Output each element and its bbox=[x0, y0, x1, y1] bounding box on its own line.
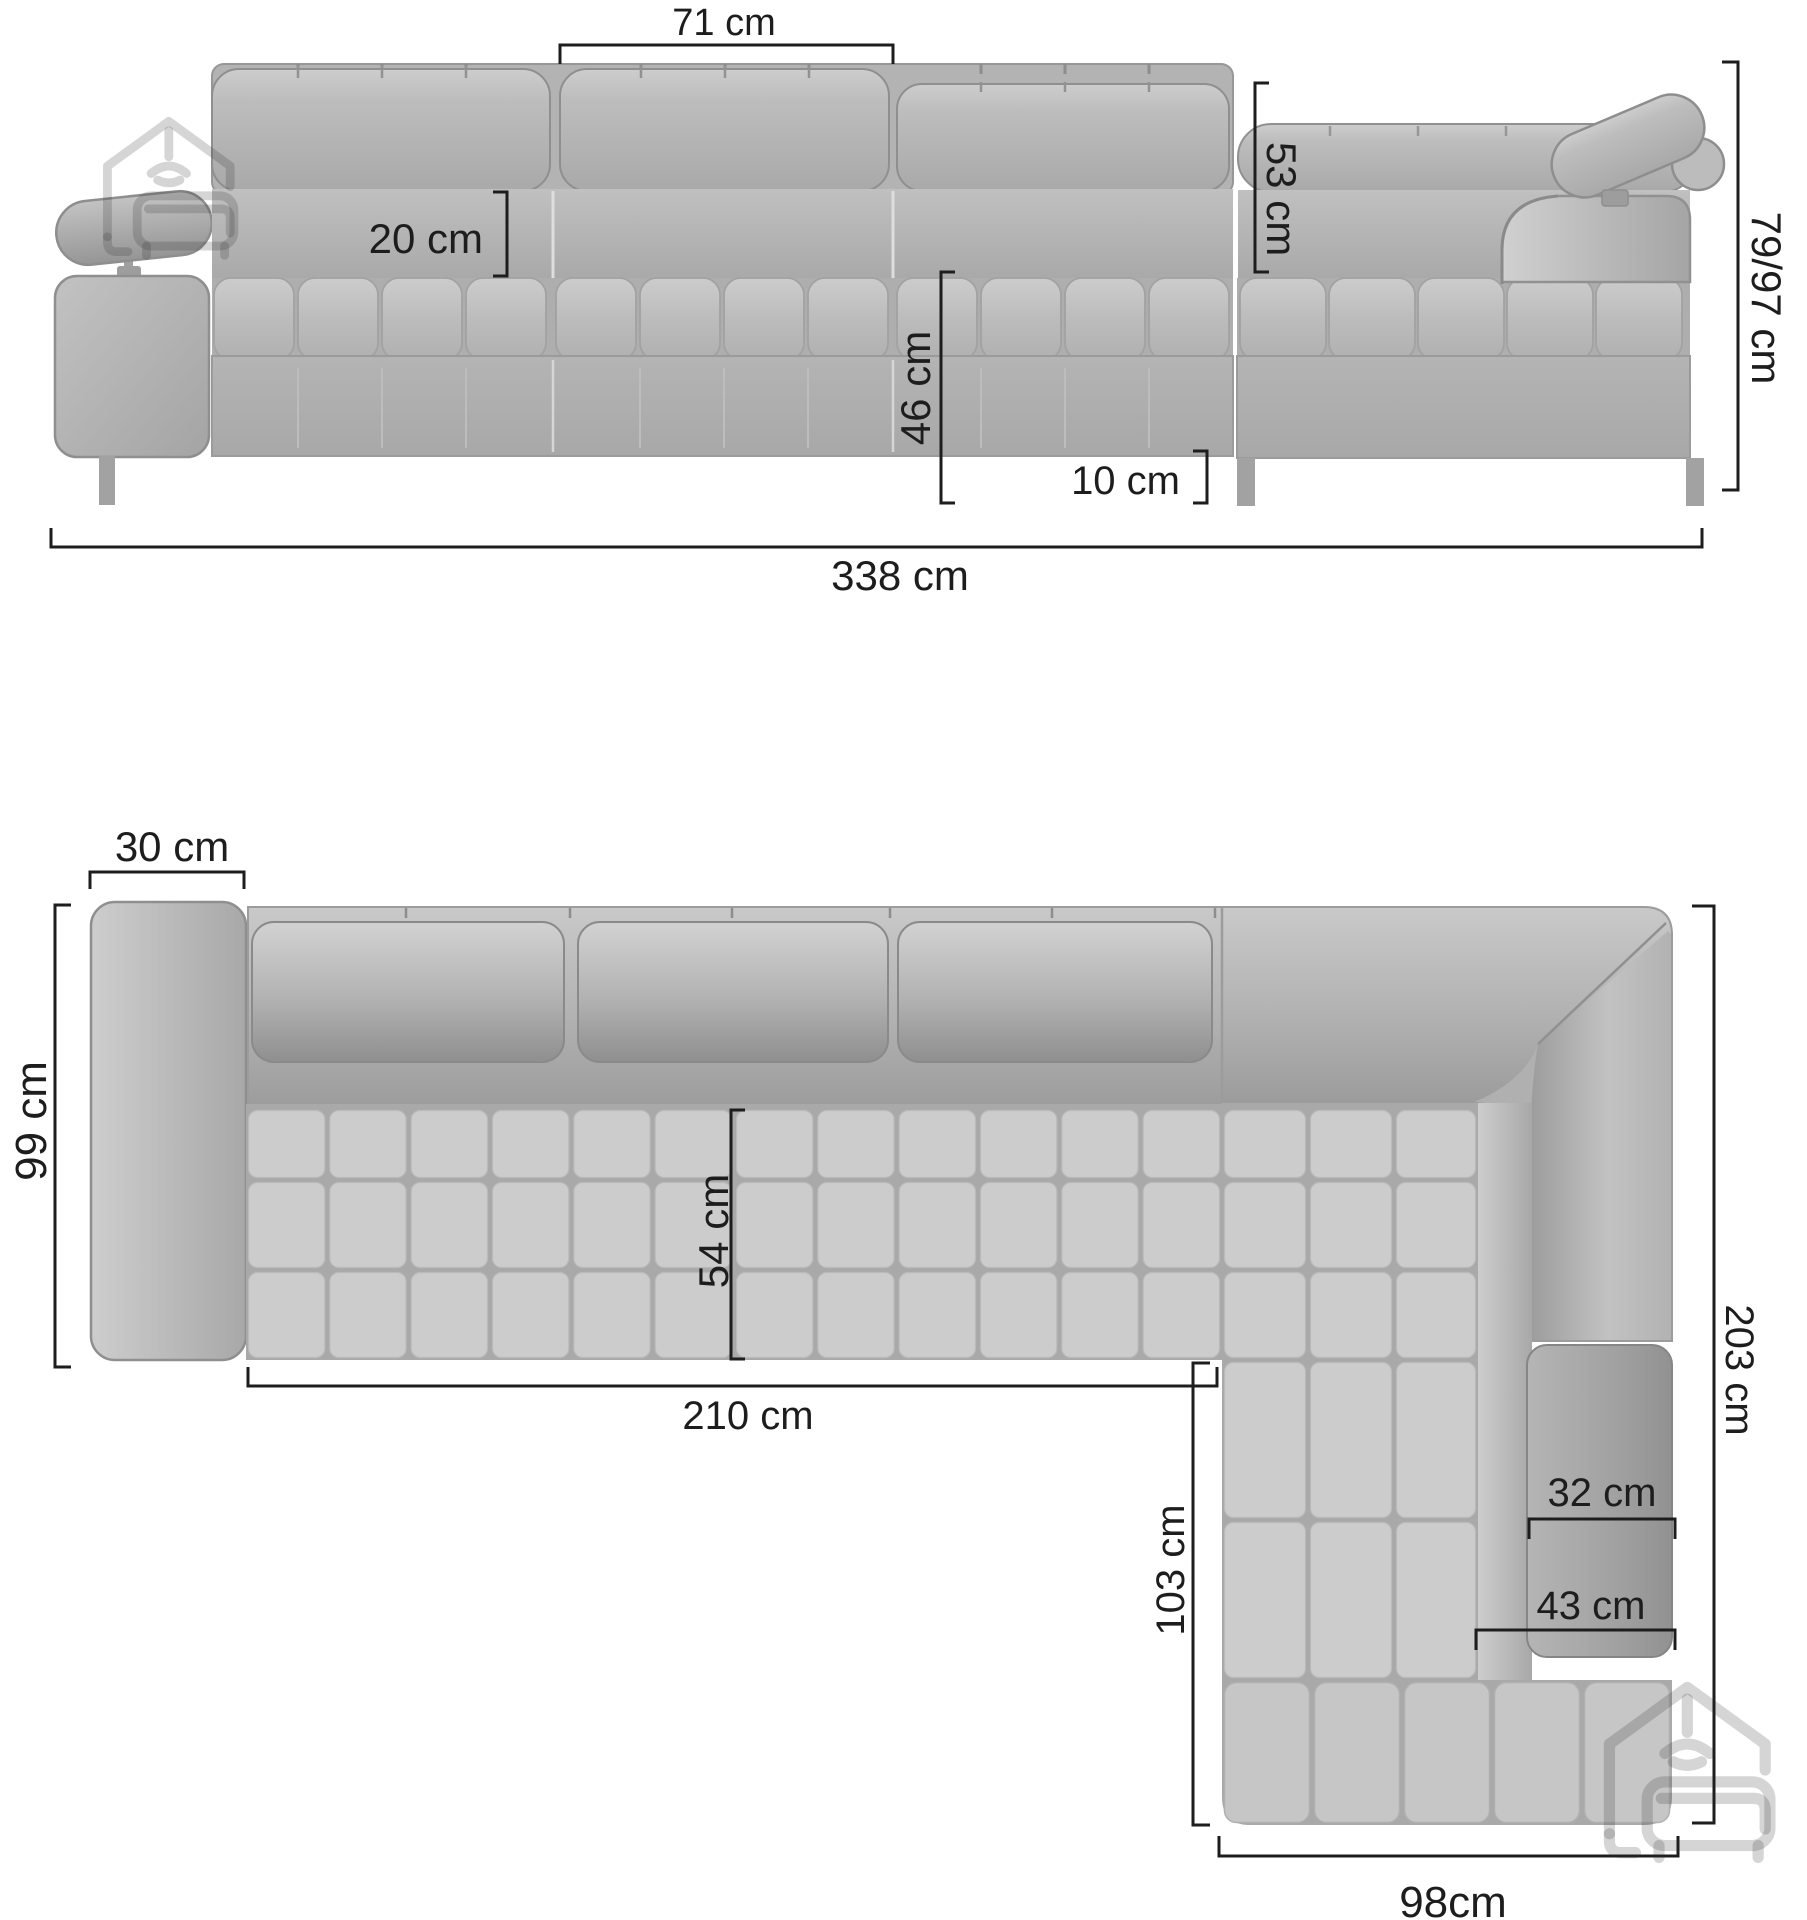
svg-text:79/97 cm: 79/97 cm bbox=[1743, 212, 1790, 385]
svg-text:20 cm: 20 cm bbox=[369, 215, 483, 262]
svg-text:43 cm: 43 cm bbox=[1537, 1584, 1646, 1628]
svg-text:32 cm: 32 cm bbox=[1548, 1471, 1657, 1515]
svg-text:98cm: 98cm bbox=[1399, 1878, 1507, 1920]
svg-text:103 cm: 103 cm bbox=[1149, 1504, 1193, 1635]
svg-text:210 cm: 210 cm bbox=[682, 1394, 813, 1438]
svg-text:46 cm: 46 cm bbox=[892, 331, 939, 445]
svg-text:71 cm: 71 cm bbox=[672, 2, 775, 44]
svg-text:203 cm: 203 cm bbox=[1717, 1304, 1761, 1435]
svg-text:30 cm: 30 cm bbox=[115, 823, 229, 870]
svg-text:338 cm: 338 cm bbox=[831, 552, 969, 599]
svg-text:53 cm: 53 cm bbox=[1258, 142, 1305, 256]
svg-text:10 cm: 10 cm bbox=[1071, 459, 1180, 503]
svg-text:54 cm: 54 cm bbox=[690, 1174, 737, 1288]
svg-text:99 cm: 99 cm bbox=[7, 1061, 56, 1181]
